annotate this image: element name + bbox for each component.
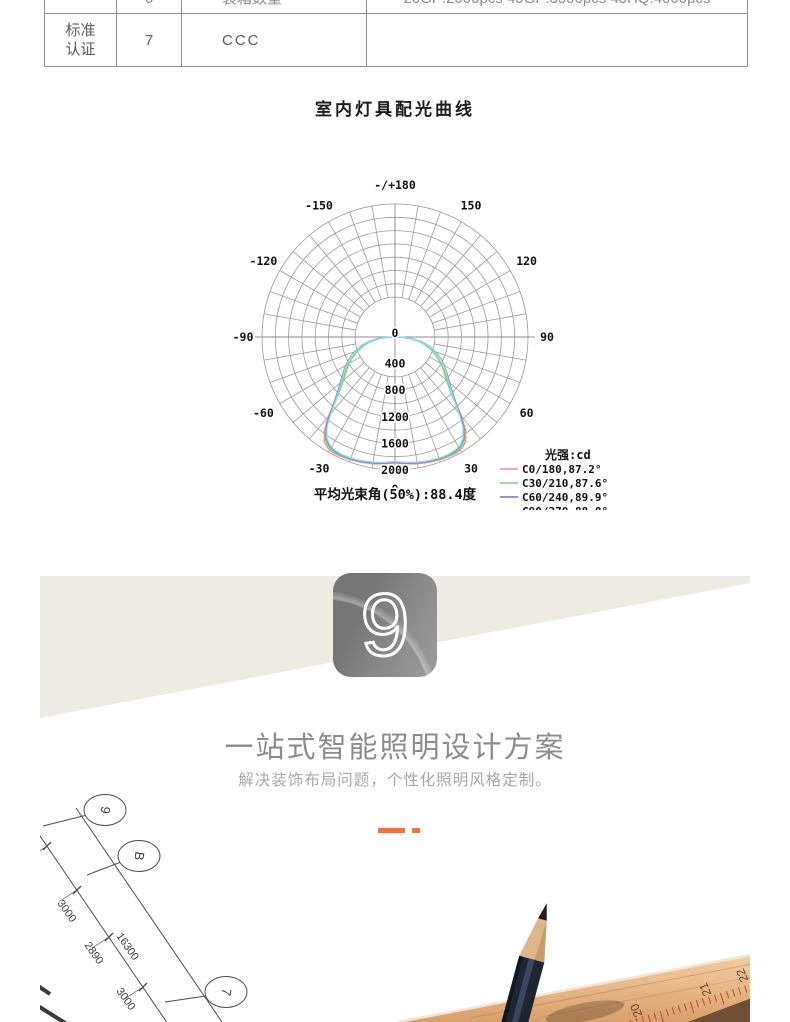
section-number: 9 [361,575,410,675]
svg-text:C30/210,87.6°: C30/210,87.6° [522,477,608,490]
table-row-certification: 标准认证 7 CCC [45,14,747,66]
svg-text:150: 150 [461,198,482,212]
svg-text:1600: 1600 [381,436,409,450]
svg-text:-/+180: -/+180 [374,180,416,192]
row-value: 20GP:2000pcs 40GP:3000pcs 40HQ:4000pcs [404,0,711,12]
section-number-badge: 9 [333,573,437,677]
row-name: CCC [222,32,261,49]
svg-text:-90: -90 [233,330,254,344]
polar-labels: -/+1801501209060300-30-60-90-120-1500400… [233,180,554,496]
svg-text:C60/240,89.9°: C60/240,89.9° [522,491,608,504]
dimension-label: 3000 [114,986,138,1013]
cell-value [367,14,747,66]
dimension-label: 16300 [114,931,141,963]
svg-text:C0/180,87.2°: C0/180,87.2° [522,463,601,476]
row-name: 装箱数量 [222,0,282,12]
cell-name: CCC [182,14,367,66]
svg-text:90: 90 [540,330,554,344]
svg-text:平均光束角(50%):88.4度: 平均光束角(50%):88.4度 [314,486,477,503]
svg-text:-30: -30 [309,462,330,476]
svg-text:60: 60 [520,406,534,420]
cell-value: 20GP:2000pcs 40GP:3000pcs 40HQ:4000pcs [367,0,747,13]
chart-legend: 光强:cdC0/180,87.2°C30/210,87.6°C60/240,89… [500,447,608,510]
svg-text:1200: 1200 [381,410,409,424]
svg-text:-150: -150 [305,198,333,212]
photometric-polar-chart: -/+1801501209060300-30-60-90-120-1500400… [180,180,760,510]
svg-text:C90/270,88.8°: C90/270,88.8° [522,505,608,510]
group-label: 标准认证 [62,21,100,59]
spec-table: 6 装箱数量 20GP:2000pcs 40GP:3000pcs 40HQ:40… [44,0,748,67]
promo-subtitle: 解决装饰布局问题，个性化照明风格定制。 [40,768,750,790]
svg-text:光强:cd: 光强:cd [544,447,591,462]
chart-section-title: 室内灯具配光曲线 [40,95,750,120]
dimension-label: 3000 [55,898,79,925]
row-no: 7 [145,32,153,49]
cell-no: 7 [117,14,182,66]
svg-text:0: 0 [392,326,399,340]
promo-title: 一站式智能照明设计方案 [40,724,750,766]
dimension-label: 2890 [82,940,106,967]
cell-name: 装箱数量 [182,0,367,13]
row-no: 6 [145,0,153,12]
product-detail-page: 6 装箱数量 20GP:2000pcs 40GP:3000pcs 40HQ:40… [0,0,790,1022]
svg-text:2000: 2000 [381,463,409,477]
cell-no: 6 [117,0,182,13]
svg-text:120: 120 [516,254,537,268]
svg-text:30: 30 [464,462,478,476]
cell-group: 标准认证 [45,14,117,66]
svg-text:800: 800 [385,383,406,397]
table-row-packing: 6 装箱数量 20GP:2000pcs 40GP:3000pcs 40HQ:40… [45,0,747,14]
svg-text:-120: -120 [250,254,278,268]
svg-text:-60: -60 [253,406,274,420]
svg-text:400: 400 [385,357,406,371]
cell-group-empty [45,0,117,13]
blueprint-photo: 9B730002890163003000202122 [40,790,750,1022]
